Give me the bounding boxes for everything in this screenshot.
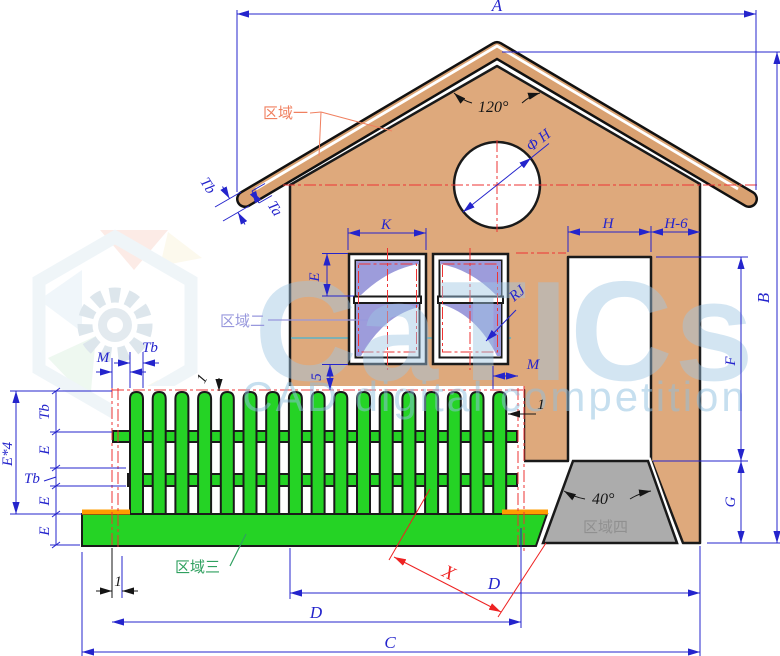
dim-label-5: 5 xyxy=(309,373,325,381)
region4-label: 区域四 xyxy=(583,519,628,536)
region2-label: 区域二 xyxy=(220,313,265,330)
dim-label-A: A xyxy=(491,0,503,15)
dim-label-1-top: 1 xyxy=(194,372,212,386)
dim-label-E-window: E xyxy=(307,272,323,282)
dim-label-Ta-roof: Ta xyxy=(264,199,285,220)
dim-label-Tb-roof: Tb xyxy=(196,175,218,197)
dim-label-K: K xyxy=(380,217,392,233)
dim-label-G: G xyxy=(723,496,739,507)
cad-drawing-page: CaTICs CAD digital competition A B C D D… xyxy=(0,0,780,656)
fence-picket xyxy=(153,392,166,514)
dim-label-Tb-row2: Tb xyxy=(24,471,40,487)
dim-label-Tb-picket: Tb xyxy=(142,340,158,356)
dim-label-E-row1: E xyxy=(37,445,53,455)
region1-label: 区域一 xyxy=(263,105,308,122)
dim-label-E-row2: E xyxy=(37,496,53,506)
dim-label-H: H xyxy=(602,216,615,232)
dim-label-Tb-row1: Tb xyxy=(37,404,53,420)
dim-label-M-right: M xyxy=(526,357,541,373)
dim-label-E-row3: E xyxy=(37,526,53,536)
fence-picket xyxy=(198,392,211,514)
dim-label-X: X xyxy=(438,561,460,586)
region3-label: 区域三 xyxy=(175,559,220,576)
fence-picket xyxy=(221,392,234,514)
dim-label-step-angle: 40° xyxy=(592,491,615,508)
dim-label-F: F xyxy=(723,356,739,367)
slab-highlight-right xyxy=(502,510,548,515)
dim-label-D-fence: D xyxy=(309,603,323,622)
dim-label-E4: E*4 xyxy=(0,441,16,467)
fence-base-slab xyxy=(82,514,547,546)
dim-label-B: B xyxy=(754,292,773,303)
drawing-canvas: CaTICs CAD digital competition A B C D D… xyxy=(0,0,780,656)
dim-label-H6: H-6 xyxy=(663,216,688,232)
dim-label-M-left: M xyxy=(96,350,111,366)
dim-label-C: C xyxy=(384,633,396,652)
dim-label-1-right: 1 xyxy=(537,397,545,413)
logo-gear-hole xyxy=(107,317,123,333)
dim-label-roof-angle: 120° xyxy=(478,99,509,116)
dim-label-1-bottom: 1 xyxy=(114,574,122,590)
fence-picket xyxy=(175,392,188,514)
slab-highlight-left xyxy=(82,510,130,515)
fence-picket xyxy=(130,392,143,514)
dim-label-D-wall: D xyxy=(487,574,501,593)
